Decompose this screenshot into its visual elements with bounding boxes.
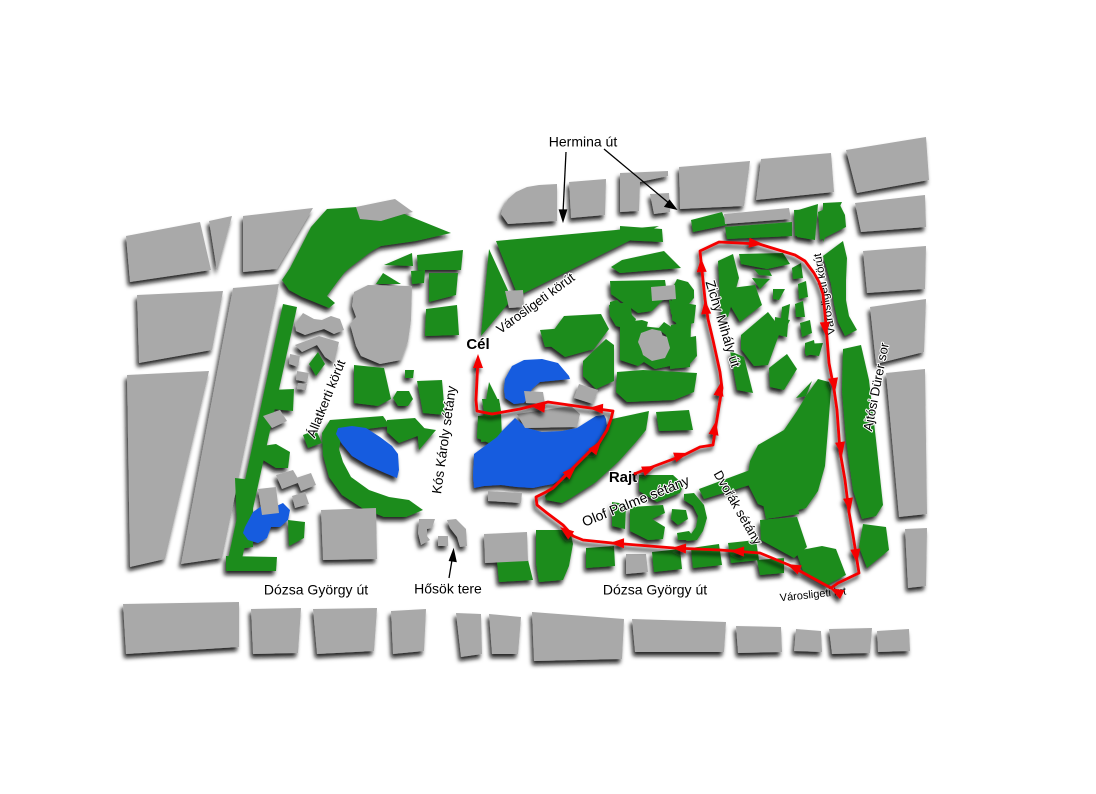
svg-text:Hősök tere: Hősök tere (414, 581, 482, 597)
svg-text:Dózsa György út: Dózsa György út (264, 582, 368, 598)
svg-text:Rajt: Rajt (609, 469, 637, 486)
svg-text:Dózsa György út: Dózsa György út (603, 582, 707, 598)
svg-text:Hermina út: Hermina út (549, 134, 618, 150)
svg-text:Cél: Cél (466, 336, 489, 353)
